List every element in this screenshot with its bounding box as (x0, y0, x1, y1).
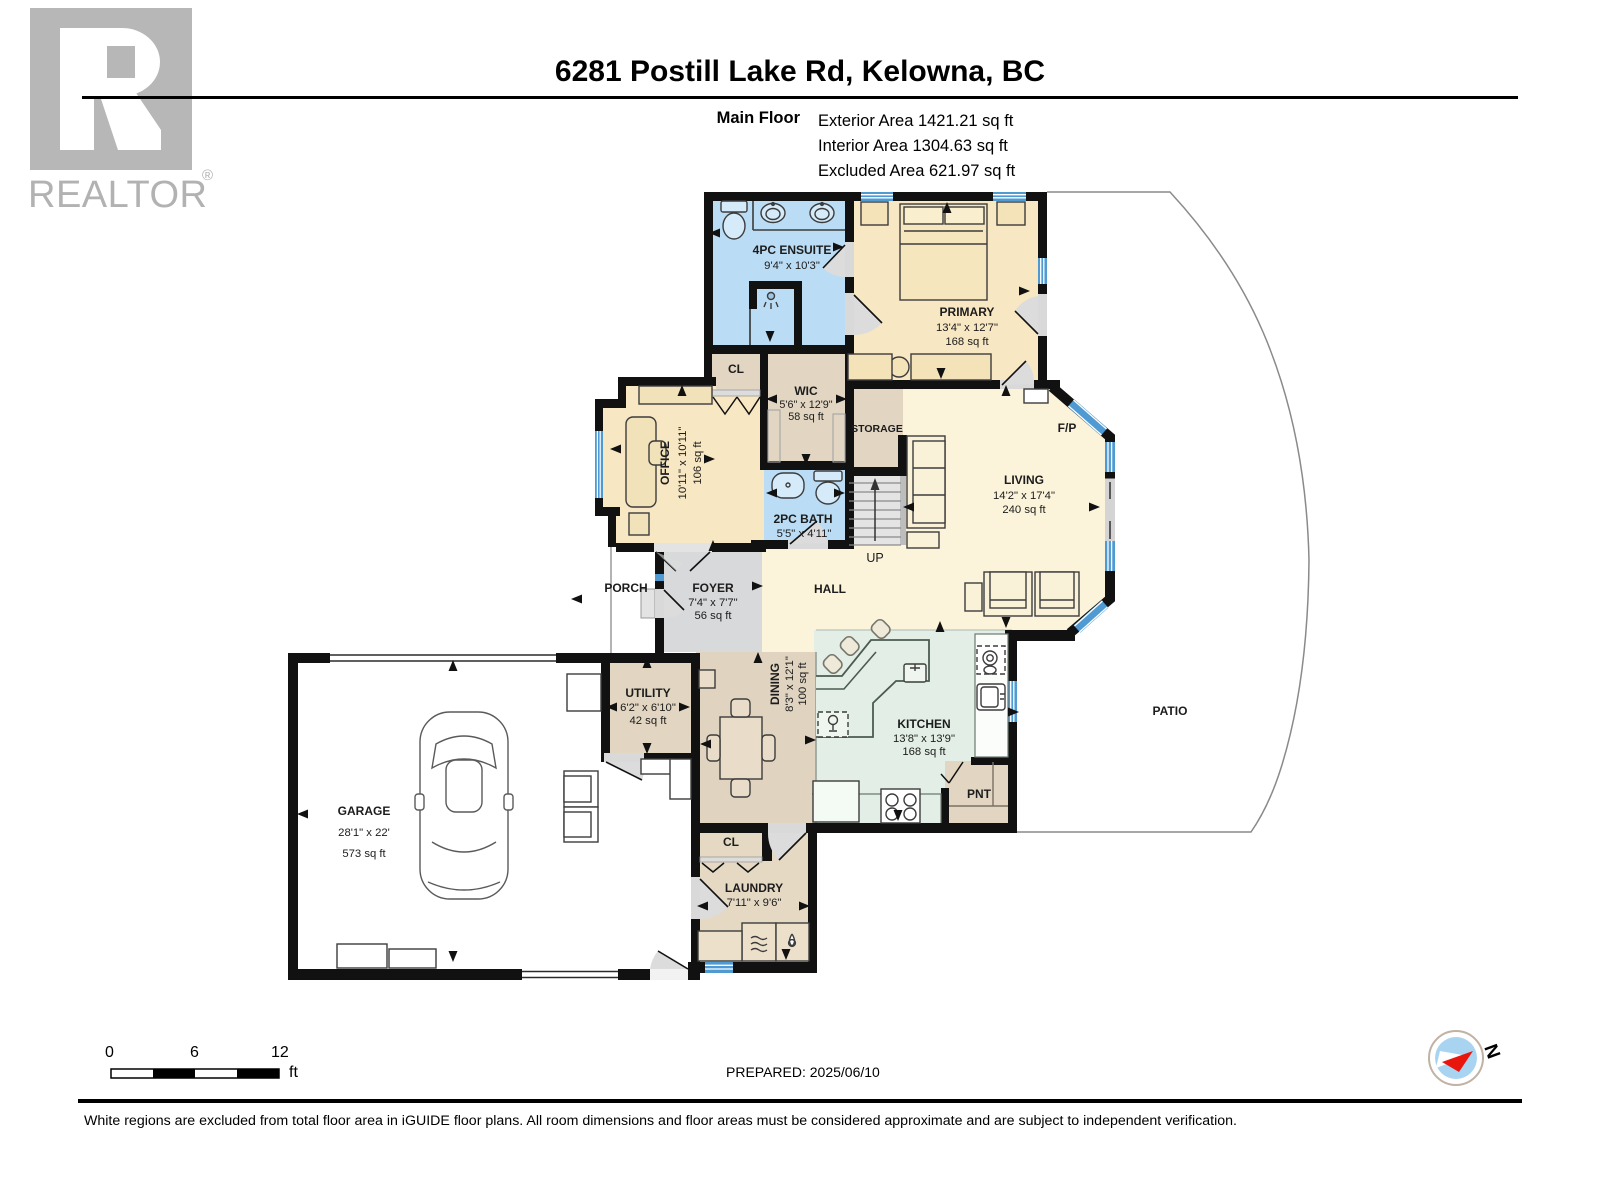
svg-text:F/P: F/P (1058, 421, 1077, 435)
svg-text:9'4" x 10'3": 9'4" x 10'3" (764, 260, 820, 272)
svg-text:LAUNDRY: LAUNDRY (725, 881, 783, 895)
svg-text:PATIO: PATIO (1153, 704, 1188, 718)
svg-text:CL: CL (728, 362, 744, 376)
svg-text:HALL: HALL (814, 582, 846, 596)
svg-text:100 sq ft: 100 sq ft (797, 661, 809, 705)
svg-text:573 sq ft: 573 sq ft (342, 848, 386, 860)
svg-text:28'1" x 22': 28'1" x 22' (338, 827, 390, 839)
svg-text:GARAGE: GARAGE (338, 804, 391, 818)
svg-text:58 sq ft: 58 sq ft (788, 411, 823, 423)
svg-text:N: N (1479, 1042, 1503, 1062)
svg-text:8'3" x 12'1": 8'3" x 12'1" (784, 656, 796, 712)
svg-text:14'2" x 17'4": 14'2" x 17'4" (993, 490, 1055, 502)
svg-text:6'2" x 6'10": 6'2" x 6'10" (620, 702, 676, 714)
svg-text:240 sq ft: 240 sq ft (1002, 504, 1046, 516)
svg-text:168 sq ft: 168 sq ft (945, 336, 989, 348)
svg-text:LIVING: LIVING (1004, 473, 1044, 487)
svg-text:10'11" x 10'11": 10'11" x 10'11" (677, 427, 689, 500)
svg-text:4PC ENSUITE: 4PC ENSUITE (753, 243, 832, 257)
svg-text:7'4" x 7'7": 7'4" x 7'7" (688, 597, 737, 609)
svg-text:42 sq ft: 42 sq ft (629, 715, 667, 727)
svg-text:OFFICE: OFFICE (658, 441, 672, 485)
svg-text:5'6" x 12'9": 5'6" x 12'9" (779, 399, 832, 411)
svg-text:FOYER: FOYER (692, 581, 734, 595)
svg-text:7'11" x 9'6": 7'11" x 9'6" (727, 897, 782, 909)
svg-text:PORCH: PORCH (604, 581, 647, 595)
svg-text:UP: UP (866, 551, 883, 565)
svg-text:168 sq ft: 168 sq ft (902, 746, 946, 758)
svg-text:UTILITY: UTILITY (625, 686, 670, 700)
svg-text:PRIMARY: PRIMARY (940, 305, 995, 319)
svg-text:STORAGE: STORAGE (851, 423, 903, 435)
svg-text:WIC: WIC (794, 384, 818, 398)
svg-text:DINING: DINING (768, 663, 782, 705)
svg-text:PNT: PNT (967, 787, 992, 801)
svg-text:56 sq ft: 56 sq ft (694, 610, 732, 622)
svg-text:106 sq ft: 106 sq ft (692, 440, 704, 484)
svg-text:13'8" x 13'9": 13'8" x 13'9" (893, 733, 955, 745)
svg-text:2PC BATH: 2PC BATH (773, 512, 832, 526)
svg-text:13'4" x 12'7": 13'4" x 12'7" (936, 322, 998, 334)
svg-text:CL: CL (723, 835, 739, 849)
svg-text:KITCHEN: KITCHEN (897, 717, 950, 731)
svg-text:5'5" x 4'11": 5'5" x 4'11" (777, 528, 832, 540)
